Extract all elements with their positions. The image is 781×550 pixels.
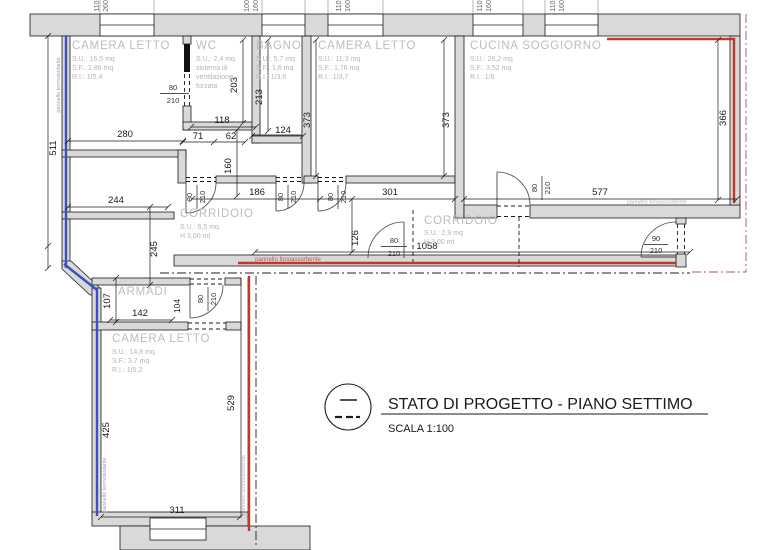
walls: [30, 14, 740, 550]
room-camera-letto-3: CAMERA LETTO S.U.: 14,8 mq S.F.: 3,7 mq …: [112, 333, 210, 374]
room-info: S.U.: 11,3 mq: [318, 56, 360, 63]
window-label-4a: 110: [477, 0, 484, 11]
door-label-d-210: 210: [543, 182, 552, 195]
window-label-1a: 110: [94, 0, 101, 11]
dim-244: 244: [108, 195, 124, 206]
floor-plan-page: 280 118 71 62 124 186 301 577 244 1058 3…: [0, 0, 781, 550]
dim-118: 118: [214, 115, 229, 126]
room-name: CORRIDOIO: [424, 215, 498, 227]
room-info: S.F.: 3,52 mq: [470, 65, 511, 72]
annotation-thermal-top: pannello termoisolante: [56, 57, 62, 112]
window-label-5b: 160: [559, 0, 566, 12]
dim-142: 142: [132, 308, 148, 319]
dim-366: 366: [718, 110, 729, 126]
room-info: S.F.: 1,76 mq: [318, 65, 359, 72]
room-camera-letto-2: CAMERA LETTO S.U.: 11,3 mq S.F.: 1,76 mq…: [318, 40, 416, 81]
door-label-e-210: 210: [650, 246, 663, 255]
door-label-a-80: 80: [185, 193, 194, 201]
room-info: S.U.: 6,5 mq: [180, 224, 219, 231]
acoustic-panel-line: [607, 39, 734, 203]
room-info: S.U.: 14,8 mq: [112, 349, 155, 356]
dim-186: 186: [249, 187, 265, 198]
dim-511: 511: [48, 140, 59, 155]
dim-311: 311: [169, 505, 184, 516]
door-label-wc-80: 80: [169, 83, 177, 92]
room-name: CAMERA LETTO: [112, 333, 210, 345]
dimension-lines: [45, 33, 740, 520]
annotation-acoustic-camera3: pannello fonoassorbente: [241, 455, 247, 515]
door-label-f-210: 210: [388, 249, 401, 258]
dim-280: 280: [117, 129, 133, 140]
title-block: STATO DI PROGETTO - PIANO SETTIMO SCALA …: [325, 384, 708, 435]
window-label-3a: 110: [336, 0, 343, 11]
dim-160: 160: [223, 158, 234, 174]
door-label-d-80: 80: [530, 184, 539, 192]
door-label-e-90: 90: [652, 234, 660, 243]
dim-529: 529: [226, 395, 237, 411]
drawing-title: STATO DI PROGETTO - PIANO SETTIMO: [388, 396, 693, 413]
door-label-f-80: 80: [390, 236, 398, 245]
annotation-thermal-bottom: pannello termoisolante: [102, 457, 108, 512]
room-name: BAGNO: [256, 40, 302, 52]
dim-213: 213: [254, 89, 265, 105]
room-info: S.F.: 1,6 mq: [256, 65, 293, 72]
room-info: S.U.: 26,2 mq: [470, 56, 513, 63]
room-info: H 3,00 mt: [424, 239, 454, 246]
dim-301: 301: [382, 187, 398, 198]
door-label-g-210: 210: [209, 293, 218, 306]
annotation-acoustic-corridor: pannello fonoassorbente: [255, 257, 321, 263]
room-name: CUCINA SOGGIORNO: [470, 40, 602, 52]
room-info: R.I.: 1/3,6: [256, 74, 286, 81]
room-cucina-soggiorno: CUCINA SOGGIORNO S.U.: 26,2 mq S.F.: 3,5…: [470, 40, 602, 81]
room-name: CORRIDOIO: [180, 208, 254, 220]
door-label-b-210: 210: [289, 191, 298, 204]
room-info: R.I.: 1/3,7: [318, 74, 348, 81]
floor-plan-drawing: 280 118 71 62 124 186 301 577 244 1058 3…: [0, 0, 781, 550]
room-info: H 3,00 mt: [180, 233, 210, 240]
room-corridoio-1: CORRIDOIO S.U.: 6,5 mq H 3,00 mt: [180, 208, 254, 240]
room-info: R.I.: 1/5,4: [72, 74, 102, 81]
window-label-1b: 260: [103, 0, 110, 12]
dim-107: 107: [102, 293, 113, 309]
room-info: S.U.: 2,4 mq: [196, 56, 235, 63]
room-info: S.U.: 2,9 mq: [424, 230, 463, 237]
room-info: S.F.: 2,86 mq: [72, 65, 113, 72]
door-label-c-210: 210: [339, 191, 348, 204]
annotation-acoustic-cucina: pannello fonoassorbente: [627, 200, 687, 206]
door-label-a-210: 210: [198, 191, 207, 204]
room-info: S.U.: 16,5 mq: [72, 56, 115, 63]
room-info: R.I.: 1/5,2: [112, 367, 142, 374]
room-info: R.I.: 1/8: [470, 74, 495, 81]
door-label-wc-210: 210: [167, 96, 180, 105]
room-name: ARMADI: [118, 286, 168, 298]
room-info: sistema di: [196, 65, 228, 72]
room-bagno: BAGNO S.U.: 5,7 mq S.F.: 1,6 mq R.I.: 1/…: [256, 40, 302, 81]
dim-62: 62: [226, 131, 237, 142]
window-label-4b: 160: [486, 0, 493, 12]
room-armadi: ARMADI: [118, 286, 168, 298]
dim-71: 71: [193, 131, 204, 142]
dim-373-left: 373: [302, 112, 313, 128]
window-label-2a: 100: [244, 0, 251, 12]
window-label-2b: 160: [253, 0, 260, 12]
window-labels: 110 260 100 160 110 160 110 160 110 160: [94, 0, 566, 12]
dim-104: 104: [172, 299, 182, 313]
door-label-c-80: 80: [326, 193, 335, 201]
dim-245: 245: [149, 241, 160, 257]
drawing-scale: SCALA 1:100: [388, 423, 454, 435]
room-info: forzata: [196, 83, 218, 90]
dim-126: 126: [350, 230, 361, 246]
dim-373-right: 373: [441, 112, 452, 128]
windows: [100, 0, 598, 540]
door-label-b-80: 80: [276, 193, 285, 201]
room-camera-letto-1: CAMERA LETTO S.U.: 16,5 mq S.F.: 2,86 mq…: [72, 40, 170, 81]
dim-425: 425: [101, 422, 112, 438]
legend-symbol: [325, 384, 371, 430]
room-info: S.F.: 3,7 mq: [112, 358, 149, 365]
dim-124: 124: [275, 125, 291, 136]
window-label-3b: 160: [345, 0, 352, 12]
room-corridoio-2: CORRIDOIO S.U.: 2,9 mq H 3,00 mt: [424, 215, 498, 246]
wc-sliding-door: [184, 44, 190, 72]
window-label-5a: 110: [550, 0, 557, 11]
room-name: WC: [196, 40, 217, 52]
room-info: ventilazione: [196, 74, 233, 81]
room-name: CAMERA LETTO: [318, 40, 416, 52]
room-info: S.U.: 5,7 mq: [256, 56, 295, 63]
dim-577: 577: [592, 187, 608, 198]
room-name: CAMERA LETTO: [72, 40, 170, 52]
door-label-g-80: 80: [196, 295, 205, 303]
